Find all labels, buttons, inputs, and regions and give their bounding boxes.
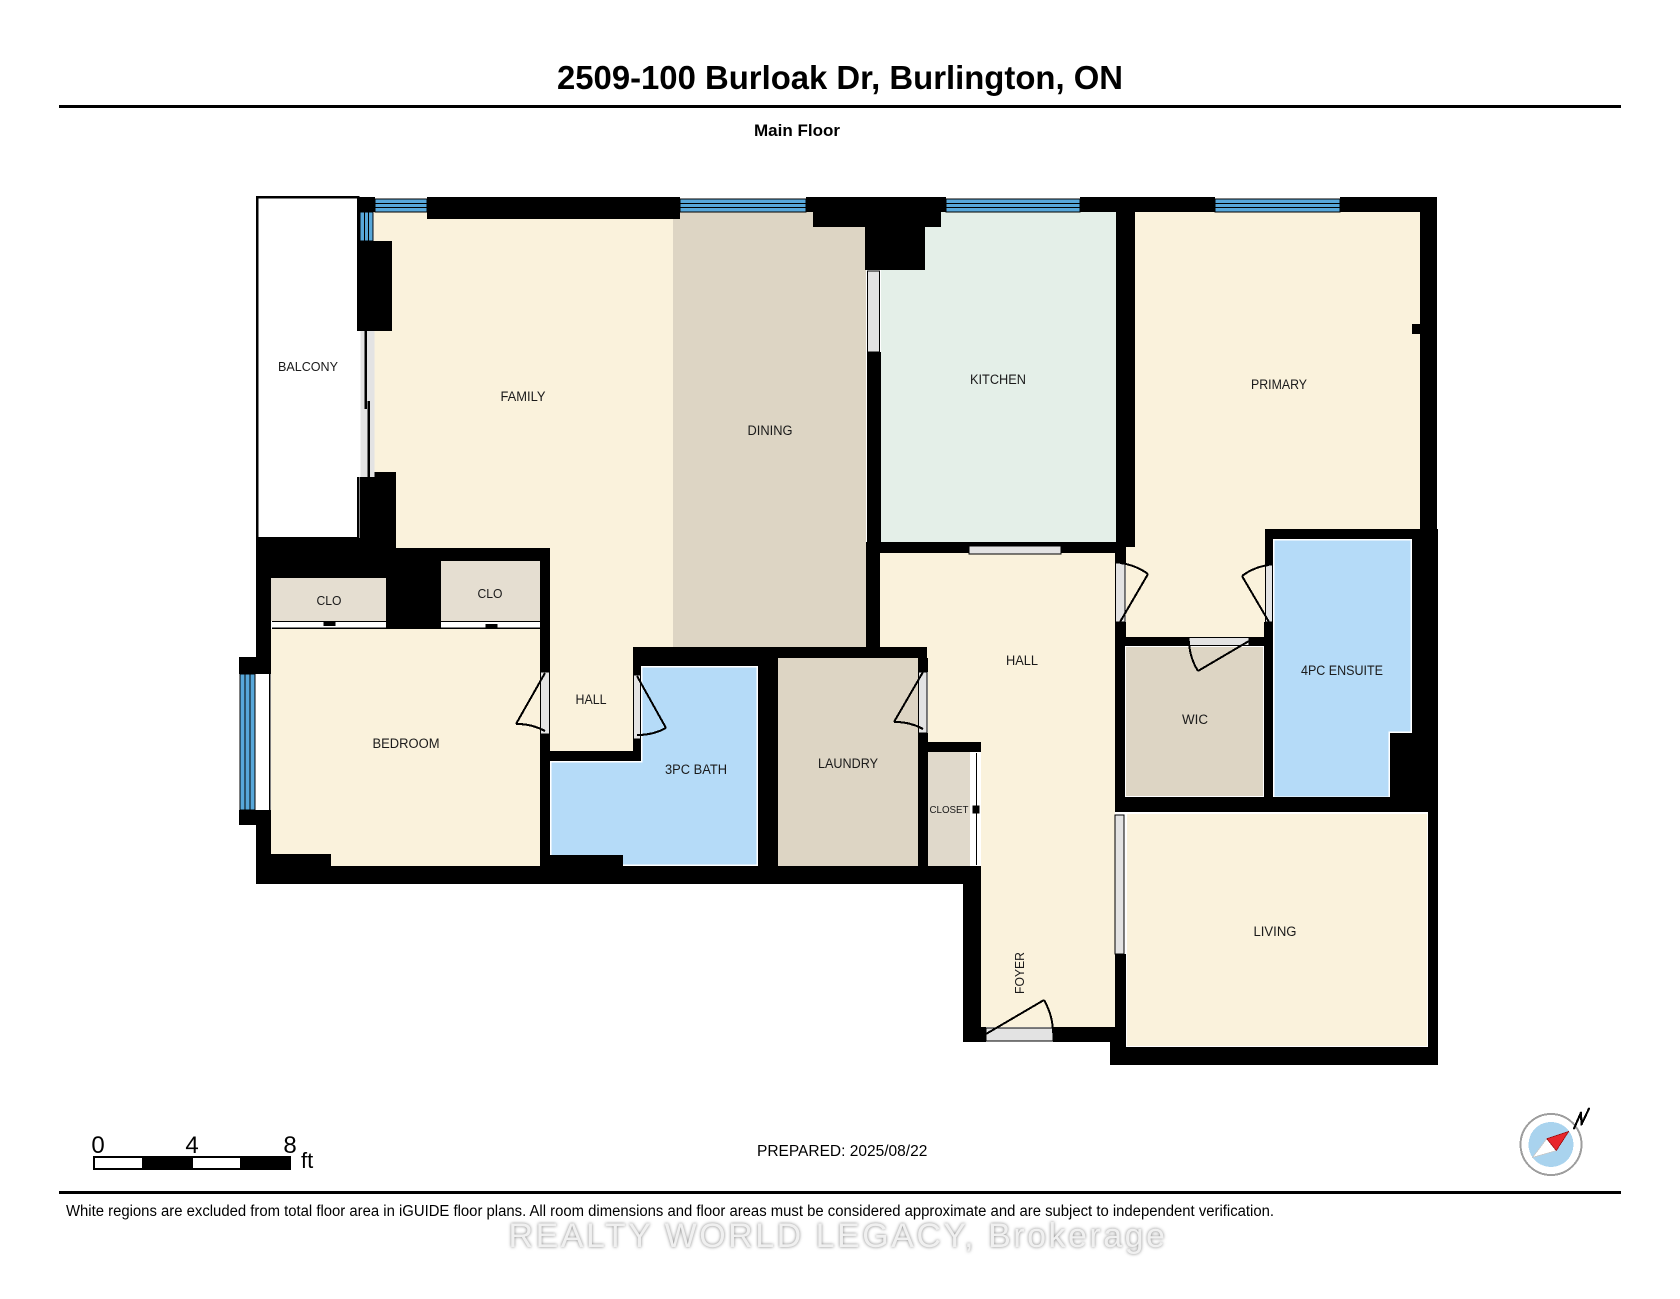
svg-text:ft: ft xyxy=(301,1148,313,1173)
svg-text:2509-100 Burloak Dr, Burlingto: 2509-100 Burloak Dr, Burlington, ON xyxy=(557,59,1123,96)
svg-text:4: 4 xyxy=(185,1132,198,1159)
svg-text:Main Floor: Main Floor xyxy=(754,121,840,140)
svg-text:PREPARED: 2025/08/22: PREPARED: 2025/08/22 xyxy=(757,1143,927,1160)
svg-text:White regions are excluded fro: White regions are excluded from total fl… xyxy=(66,1203,1274,1220)
svg-text:0: 0 xyxy=(91,1132,104,1159)
svg-text:4PC ENSUITE: 4PC ENSUITE xyxy=(1301,663,1383,678)
svg-text:CLO: CLO xyxy=(478,586,503,601)
svg-text:CLO: CLO xyxy=(317,593,342,608)
svg-text:8: 8 xyxy=(283,1132,296,1159)
svg-text:LAUNDRY: LAUNDRY xyxy=(818,756,878,771)
svg-text:PRIMARY: PRIMARY xyxy=(1251,377,1307,392)
svg-text:FAMILY: FAMILY xyxy=(501,389,546,404)
svg-text:HALL: HALL xyxy=(576,692,607,707)
svg-text:3PC BATH: 3PC BATH xyxy=(665,762,727,777)
svg-text:FOYER: FOYER xyxy=(1012,952,1027,994)
svg-text:LIVING: LIVING xyxy=(1254,924,1297,939)
svg-text:HALL: HALL xyxy=(1006,653,1038,668)
svg-text:BEDROOM: BEDROOM xyxy=(373,736,440,751)
svg-text:CLOSET: CLOSET xyxy=(930,804,970,816)
svg-text:REALTY WORLD LEGACY, Brokerage: REALTY WORLD LEGACY, Brokerage xyxy=(509,1217,1168,1255)
svg-text:BALCONY: BALCONY xyxy=(278,359,338,374)
svg-text:WIC: WIC xyxy=(1182,712,1208,727)
svg-text:KITCHEN: KITCHEN xyxy=(970,372,1026,387)
svg-text:DINING: DINING xyxy=(748,423,793,438)
